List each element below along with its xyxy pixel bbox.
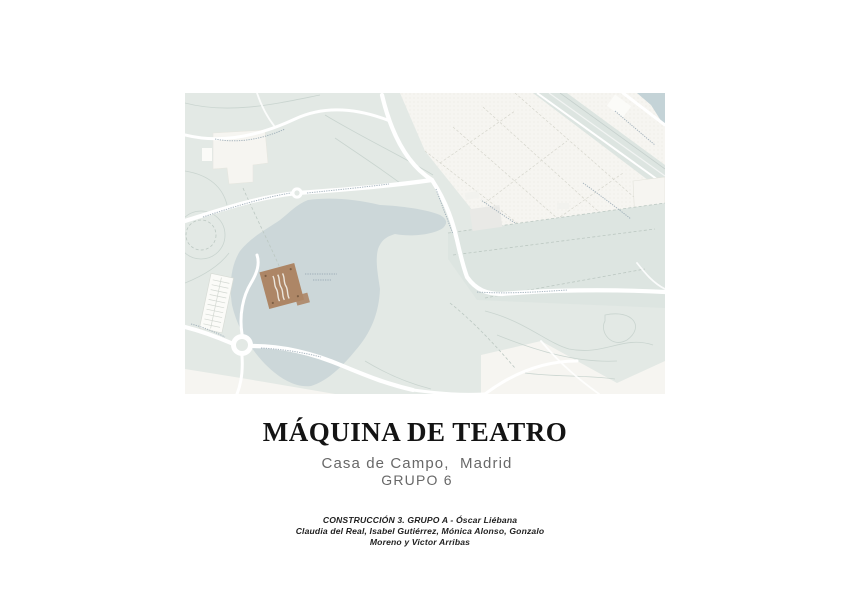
group-label: GRUPO 6 bbox=[0, 472, 834, 488]
credits-line-course: CONSTRUCCIÓN 3. GRUPO A - Óscar Liébana bbox=[0, 515, 840, 526]
credits-block: CONSTRUCCIÓN 3. GRUPO A - Óscar Liébana … bbox=[0, 515, 840, 547]
credits-line-authors-2: Moreno y Victor Arribas bbox=[0, 537, 840, 548]
presentation-slide: MÁQUINA DE TEATRO Casa de Campo, Madrid … bbox=[0, 0, 848, 600]
map-building-block bbox=[202, 148, 212, 161]
map-building-block bbox=[470, 205, 503, 231]
credits-line-authors-1: Claudia del Real, Isabel Gutiérrez, Móni… bbox=[0, 526, 840, 537]
map-building-block bbox=[557, 203, 569, 209]
site-map bbox=[185, 93, 665, 394]
page-title: MÁQUINA DE TEATRO bbox=[0, 417, 830, 448]
site-map-canvas bbox=[185, 93, 665, 394]
map-roundabout bbox=[231, 334, 253, 356]
location-subtitle: Casa de Campo, Madrid bbox=[0, 455, 834, 472]
map-roundabout bbox=[291, 187, 302, 198]
